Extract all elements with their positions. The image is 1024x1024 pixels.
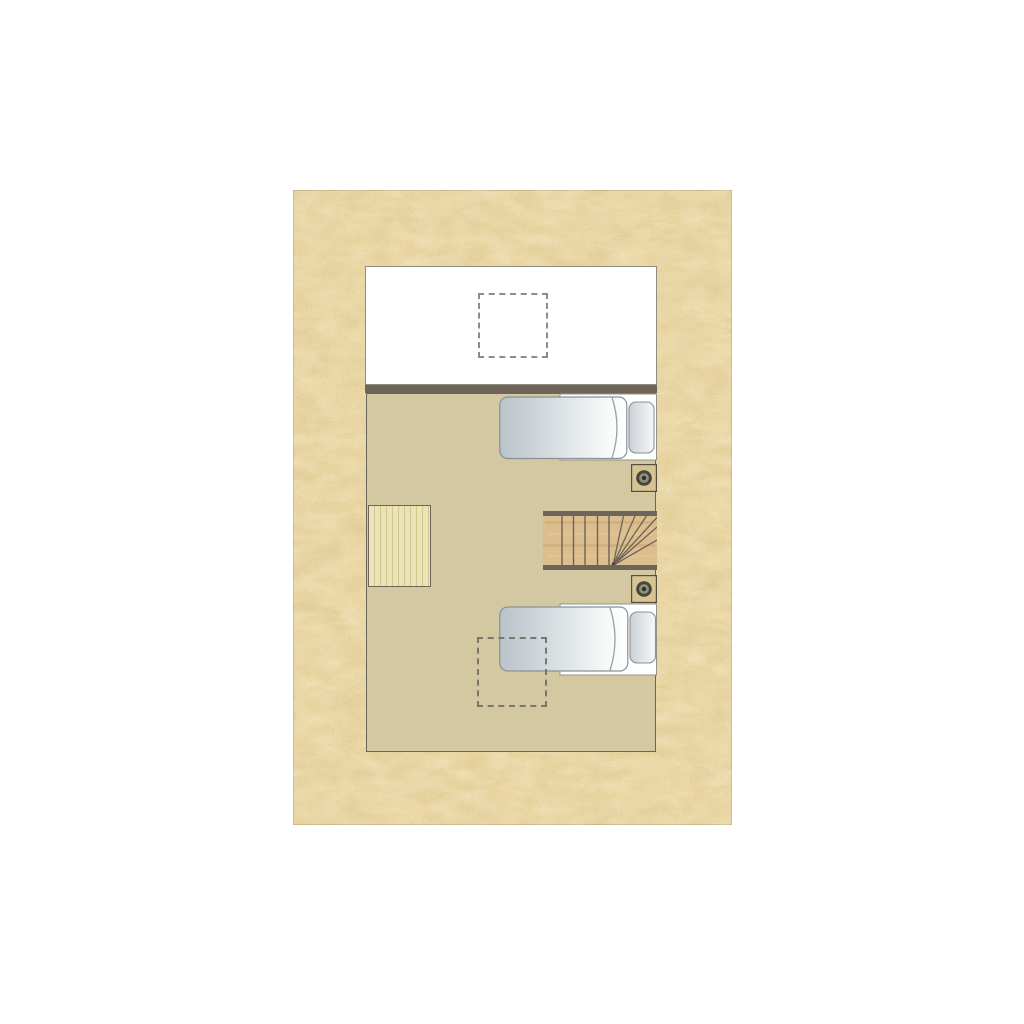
roof-window-upper-outline	[478, 293, 548, 358]
spotlight-bottom	[631, 575, 657, 603]
single-bed-top	[499, 393, 657, 462]
dividing-wall	[365, 385, 657, 393]
spotlight-dot-icon	[642, 587, 646, 591]
stair-rail-top	[543, 511, 657, 516]
pillow	[630, 612, 656, 663]
table-woodgrain	[369, 506, 430, 586]
side-table	[368, 505, 431, 587]
pillow	[629, 402, 654, 453]
spotlight-dot-icon	[642, 476, 646, 480]
floor-plan-canvas	[0, 0, 1024, 1024]
spotlight-top	[631, 464, 657, 492]
mattress	[500, 397, 627, 459]
roof-window-lower-outline	[477, 637, 547, 707]
stair-rail-bottom	[543, 565, 657, 570]
winder-staircase	[543, 511, 657, 570]
